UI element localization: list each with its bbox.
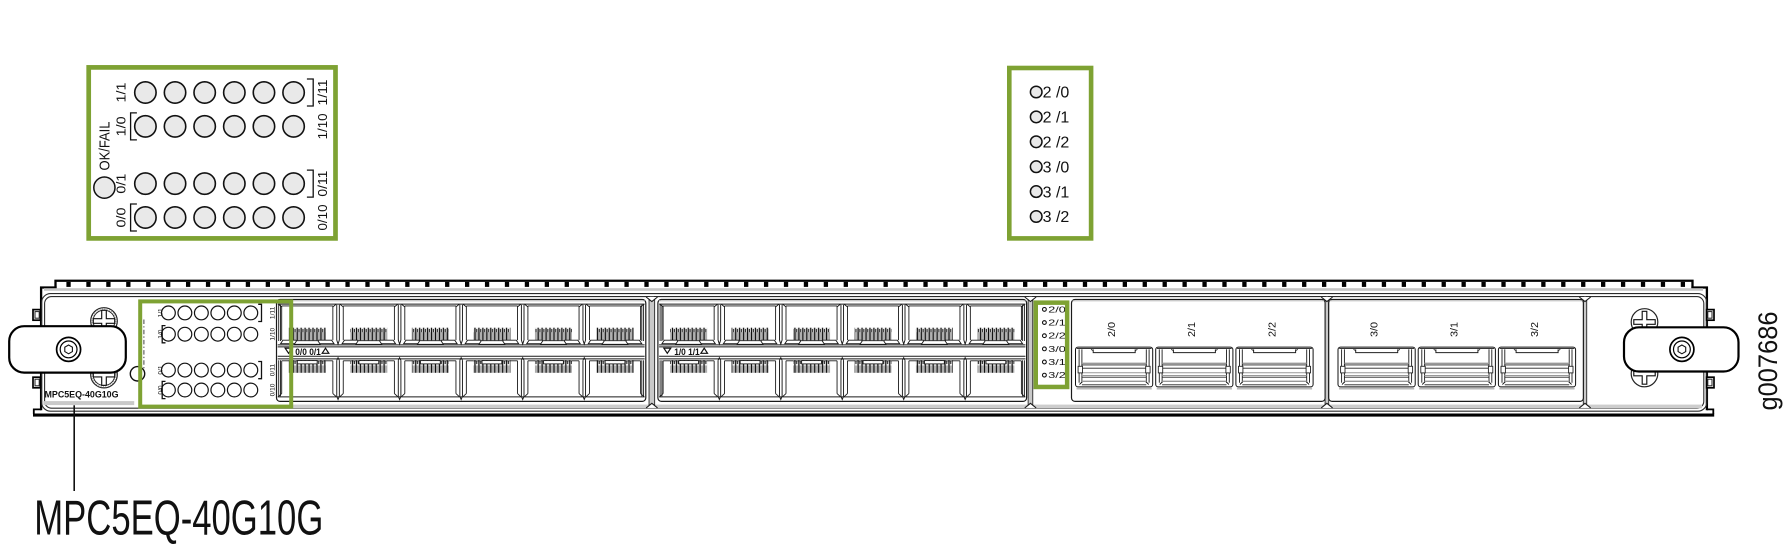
svg-text:1/10: 1/10 <box>270 327 277 340</box>
svg-text:3/1: 3/1 <box>1048 358 1066 367</box>
svg-text:3/2: 3/2 <box>1530 322 1541 337</box>
svg-text:2/2: 2/2 <box>1048 332 1066 341</box>
svg-text:2/1: 2/1 <box>1187 322 1198 337</box>
svg-text:0/0 0/1: 0/0 0/1 <box>295 347 321 357</box>
svg-text:2/1: 2/1 <box>1048 319 1066 328</box>
svg-text:3/0: 3/0 <box>1370 322 1381 337</box>
svg-text:3/1: 3/1 <box>1450 322 1461 337</box>
svg-text:0/0: 0/0 <box>114 208 129 228</box>
svg-text:0/10: 0/10 <box>315 205 330 231</box>
svg-text:1/11: 1/11 <box>270 306 277 319</box>
svg-text:1/0: 1/0 <box>158 329 165 338</box>
svg-text:g007686: g007686 <box>1753 312 1783 411</box>
svg-text:2 /1: 2 /1 <box>1043 110 1070 127</box>
svg-text:3 /1: 3 /1 <box>1043 184 1070 201</box>
svg-text:0/1: 0/1 <box>114 174 129 194</box>
svg-text:0/0: 0/0 <box>158 385 165 394</box>
svg-text:MPC5EQ-40G10G: MPC5EQ-40G10G <box>45 390 119 400</box>
svg-text:2/2: 2/2 <box>1267 322 1278 337</box>
svg-text:3/0: 3/0 <box>1048 345 1066 354</box>
svg-text:1/10: 1/10 <box>315 113 330 139</box>
svg-text:1/0: 1/0 <box>114 116 129 136</box>
svg-text:2 /2: 2 /2 <box>1043 135 1070 152</box>
svg-text:1/0 1/1: 1/0 1/1 <box>674 347 700 357</box>
svg-text:3/2: 3/2 <box>1048 371 1066 380</box>
svg-text:2/0: 2/0 <box>1107 322 1118 337</box>
svg-text:3 /2: 3 /2 <box>1043 209 1070 226</box>
svg-text:1/11: 1/11 <box>315 80 330 106</box>
svg-text:0/10: 0/10 <box>270 383 277 396</box>
svg-text:3 /0: 3 /0 <box>1043 159 1070 176</box>
svg-text:MPC5EQ-40G10G: MPC5EQ-40G10G <box>34 491 323 545</box>
svg-text:0/11: 0/11 <box>315 171 330 197</box>
svg-text:1/1: 1/1 <box>158 308 165 317</box>
svg-text:1/1: 1/1 <box>114 83 129 103</box>
svg-text:0/1: 0/1 <box>158 365 165 374</box>
svg-text:2/0: 2/0 <box>1048 305 1066 314</box>
svg-text:2 /0: 2 /0 <box>1043 85 1070 102</box>
svg-text:0/11: 0/11 <box>270 364 277 377</box>
svg-text:OK/FAIL: OK/FAIL <box>97 122 114 171</box>
